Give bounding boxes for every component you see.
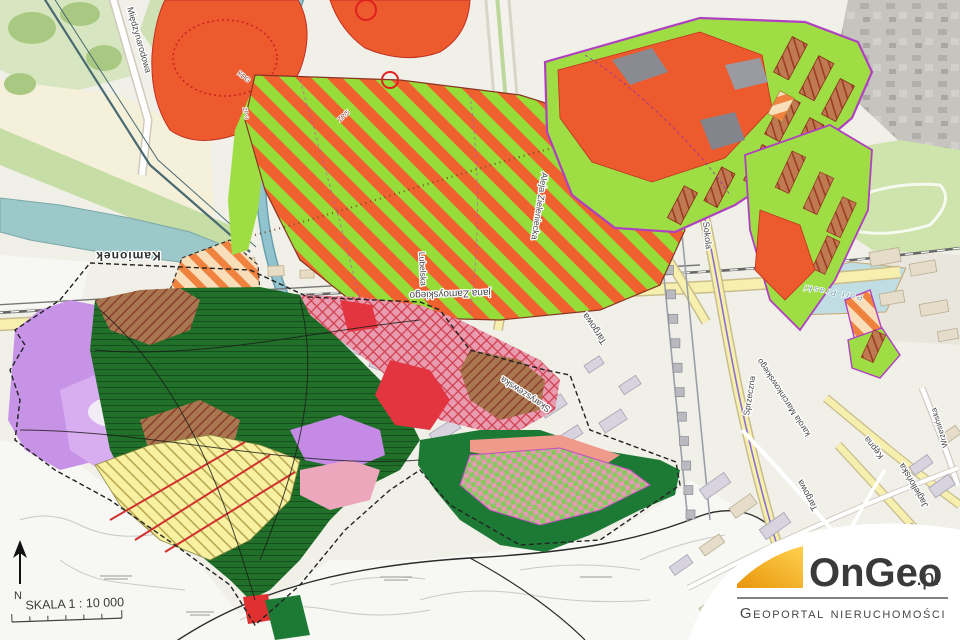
map-canvas[interactable]: Międzynarodowa Kamionek jana Zamoyskiego… (0, 0, 960, 640)
logo-subtitle: Geoportal nieruchomości (740, 605, 946, 622)
viaduct-pillar (675, 388, 684, 397)
viaduct-pillar (671, 339, 680, 348)
viaduct-pillar (686, 510, 695, 519)
district-label-kamionek: Kamionek (95, 249, 160, 263)
geoportal-map-view[interactable]: Międzynarodowa Kamionek jana Zamoyskiego… (0, 0, 960, 640)
viaduct-pillar (667, 290, 676, 299)
viaduct-pillar (680, 437, 689, 446)
viaduct-pillar (677, 412, 686, 421)
tree-clump (60, 2, 100, 26)
street-label-lubelska: Lubelska (417, 252, 429, 287)
building (300, 270, 314, 278)
logo-tld-text: .pl (916, 565, 939, 590)
viaduct-pillar (684, 486, 693, 495)
tree-clump (4, 73, 36, 95)
tree-clump (86, 45, 122, 71)
tree-clump (8, 12, 56, 44)
north-letter: N (14, 590, 22, 602)
building (268, 266, 285, 277)
viaduct-pillar (682, 461, 691, 470)
viaduct-pillar (673, 363, 682, 372)
viaduct-pillar (669, 314, 678, 323)
